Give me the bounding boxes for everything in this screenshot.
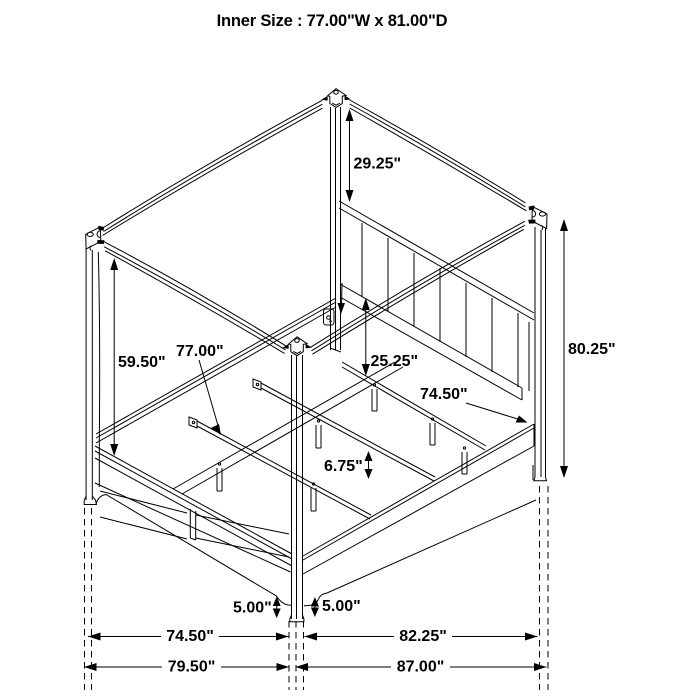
svg-text:29.25": 29.25"	[354, 156, 402, 173]
svg-text:80.25": 80.25"	[568, 341, 616, 358]
svg-text:74.50": 74.50"	[420, 386, 468, 403]
svg-text:5.00": 5.00"	[233, 600, 272, 617]
svg-text:5.00": 5.00"	[322, 598, 361, 615]
svg-text:6.75": 6.75"	[324, 458, 363, 475]
svg-text:82.25": 82.25"	[399, 628, 447, 645]
svg-text:77.00": 77.00"	[176, 343, 224, 360]
svg-text:25.25": 25.25"	[371, 353, 419, 370]
svg-text:Inner Size : 77.00"W x 81.00"D: Inner Size : 77.00"W x 81.00"D	[217, 12, 448, 30]
svg-text:74.50": 74.50"	[166, 628, 214, 645]
svg-text:59.50": 59.50"	[118, 354, 166, 371]
svg-text:79.50": 79.50"	[168, 659, 216, 676]
svg-text:87.00": 87.00"	[397, 659, 445, 676]
